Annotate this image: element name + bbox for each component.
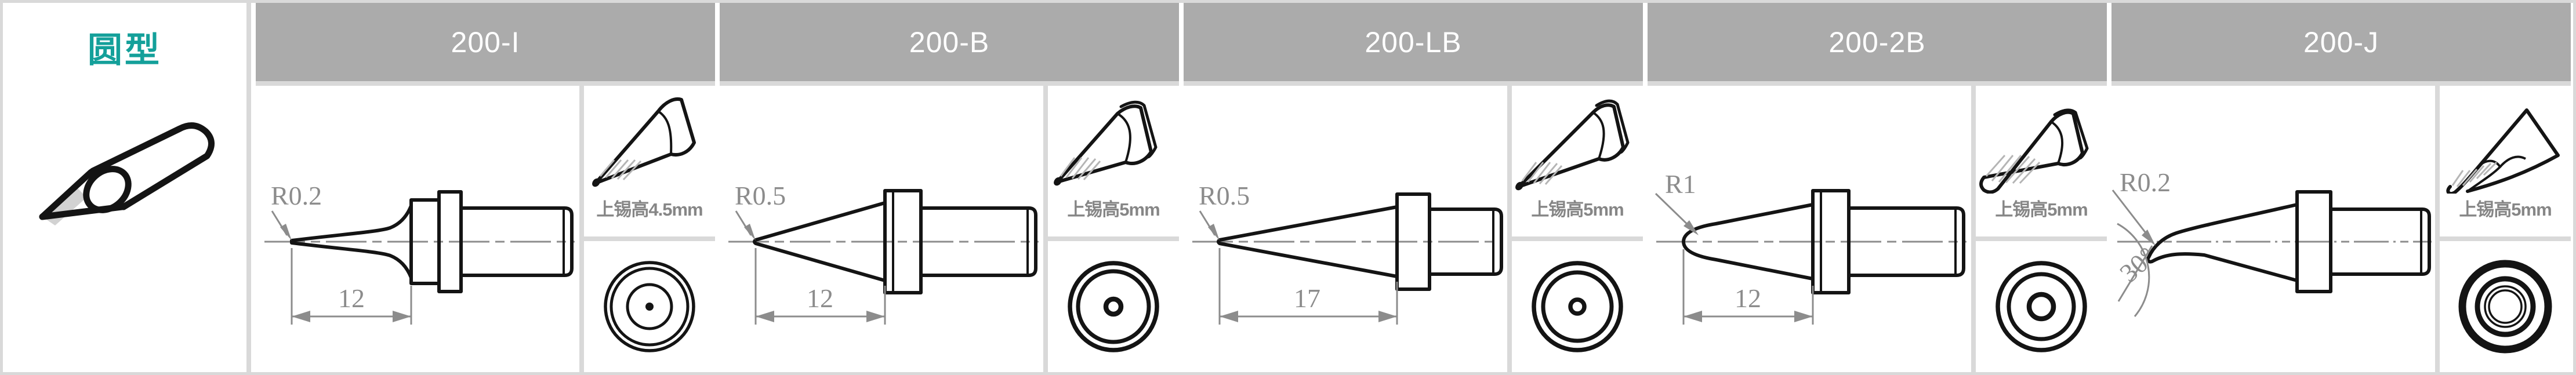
category-title: 圆型 xyxy=(88,33,162,68)
category-cell: 圆型 xyxy=(3,3,251,372)
tip-3d-icon xyxy=(1512,89,1643,194)
length-label: 12 xyxy=(807,283,833,313)
side-view-cell: R0.2 30° xyxy=(2111,86,2440,372)
side-view-cell: R0.2 12 xyxy=(256,86,584,372)
tip-3d-icon xyxy=(2440,89,2571,194)
side-view-cell: R0.5 17 xyxy=(1184,86,1512,372)
model-header: 200-LB xyxy=(1184,3,1643,86)
column-200-2B: 200-2B R1 12 xyxy=(1648,3,2107,372)
front-view-cell xyxy=(1048,241,1179,372)
tin-height-label: 上锡高5mm xyxy=(1531,195,1623,221)
radius-label: R0.2 xyxy=(271,181,322,210)
tip-front-view-icon xyxy=(1055,249,1171,365)
round-tip-3d-icon xyxy=(3,74,246,323)
tin-height-cell: 上锡高4.5mm xyxy=(584,86,715,241)
length-label: 12 xyxy=(1735,283,1761,313)
tin-height-cell: 上锡高5mm xyxy=(1512,86,1643,241)
column-200-J: 200-J R0.2 30° xyxy=(2111,3,2571,372)
radius-label: R1 xyxy=(1665,169,1696,199)
tip-front-view-icon xyxy=(1519,249,1635,365)
length-label: 17 xyxy=(1294,283,1320,313)
front-view-cell xyxy=(2440,241,2571,372)
length-label: 12 xyxy=(338,283,365,313)
front-view-cell xyxy=(1512,241,1643,372)
side-view-drawing: R0.2 30° xyxy=(2111,86,2435,367)
column-200-I: 200-I R0.2 12 xyxy=(256,3,715,372)
side-view-cell: R0.5 12 xyxy=(720,86,1048,372)
side-view-drawing: R1 12 xyxy=(1648,86,1971,367)
radius-label: R0.5 xyxy=(1199,181,1250,210)
model-header: 200-J xyxy=(2111,3,2571,86)
tin-height-cell: 上锡高5mm xyxy=(1048,86,1179,241)
side-view-drawing: R0.5 12 xyxy=(720,86,1043,367)
tip-front-view-icon xyxy=(1983,249,2099,365)
radius-label: R0.2 xyxy=(2120,168,2171,197)
model-header: 200-B xyxy=(720,3,1179,86)
tip-3d-icon xyxy=(584,89,715,194)
tip-3d-icon xyxy=(1048,89,1179,194)
tip-3d-icon xyxy=(1976,89,2107,194)
column-200-LB: 200-LB R0.5 17 xyxy=(1184,3,1643,372)
side-view-drawing: R0.2 12 xyxy=(256,86,579,367)
side-view-drawing: R0.5 17 xyxy=(1184,86,1507,367)
tin-height-label: 上锡高5mm xyxy=(1995,195,2087,221)
tin-height-label: 上锡高5mm xyxy=(1067,195,1159,221)
tin-height-label: 上锡高4.5mm xyxy=(596,195,702,221)
radius-label: R0.5 xyxy=(735,181,786,210)
front-view-cell xyxy=(584,241,715,372)
tin-height-cell: 上锡高5mm xyxy=(1976,86,2107,241)
tin-height-label: 上锡高5mm xyxy=(2459,195,2551,221)
tip-spec-table: 圆型 200-I R0.2 xyxy=(0,0,2576,375)
tip-front-view-icon xyxy=(592,249,708,365)
tip-front-view-icon xyxy=(2447,249,2563,365)
tin-height-cell: 上锡高5mm xyxy=(2440,86,2571,241)
front-view-cell xyxy=(1976,241,2107,372)
model-header: 200-I xyxy=(256,3,715,86)
model-header: 200-2B xyxy=(1648,3,2107,86)
column-200-B: 200-B R0.5 12 xyxy=(720,3,1179,372)
side-view-cell: R1 12 xyxy=(1648,86,1976,372)
